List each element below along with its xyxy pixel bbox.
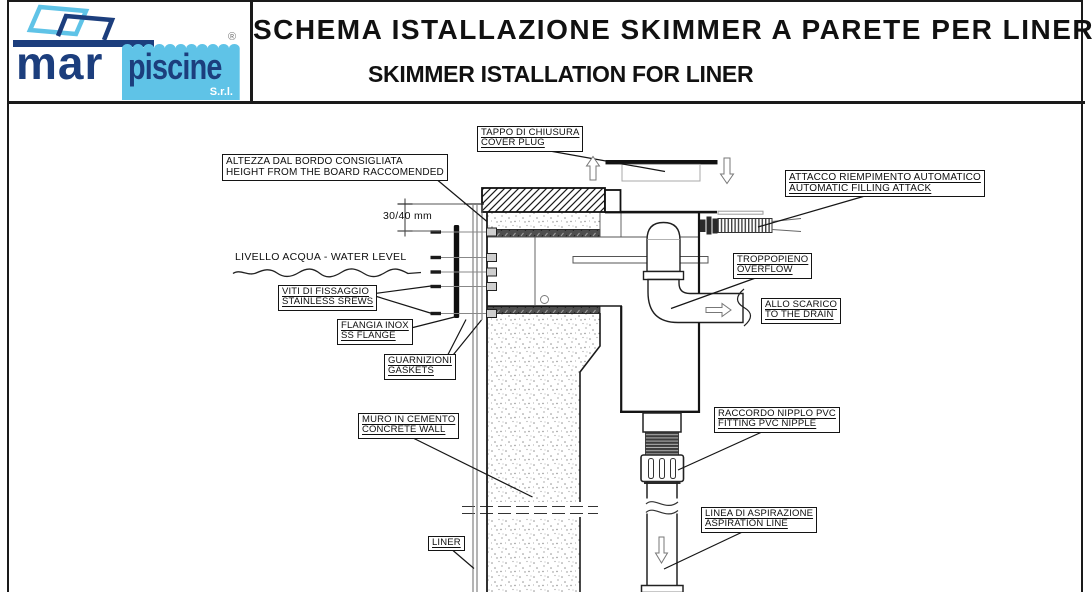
- callout-pvc-nipple: RACCORDO NIPPLO PVC FITTING PVC NIPPLE: [714, 407, 840, 433]
- callout-liner: LINER: [428, 536, 465, 551]
- callout-aspiration-line: LINEA DI ASPIRAZIONE ASPIRATION LINE: [701, 507, 817, 533]
- callout-ss-flange: FLANGIA INOX SS FLANGE: [337, 319, 413, 345]
- page: mar piscine S.r.l. ®: [0, 0, 1092, 592]
- nipple-fitting: [641, 413, 684, 482]
- callout-fixing-screws: VITI DI FISSAGGIO STAINLESS SREWS: [278, 285, 377, 311]
- logo-word-piscine: piscine: [128, 46, 222, 87]
- callout-automatic-filling: ATTACCO RIEMPIMENTO AUTOMATICO AUTOMATIC…: [785, 170, 985, 197]
- callout-to-drain: ALLO SCARICO TO THE DRAIN: [761, 298, 841, 324]
- logo-suffix: S.r.l.: [210, 86, 233, 98]
- weir-plate: [573, 257, 708, 264]
- logo-word-mar: mar: [16, 37, 103, 89]
- pool-coping: [482, 188, 621, 212]
- water-level-line: [233, 269, 421, 277]
- dimension-label: 30/40 mm: [383, 210, 432, 222]
- callout-overflow: TROPPOPIENO OVERFLOW: [733, 253, 812, 279]
- ss-flange-plate: [454, 225, 459, 318]
- water-level-label: LIVELLO ACQUA - WATER LEVEL: [235, 251, 407, 263]
- callout-height-from-board: ALTEZZA DAL BORDO CONSIGLIATA HEIGHT FRO…: [222, 154, 448, 181]
- registered-mark-icon: ®: [228, 31, 236, 43]
- callout-concrete-wall: MURO IN CEMENTO CONCRETE WALL: [358, 413, 459, 439]
- flange-assembly: [398, 204, 497, 592]
- skimmer-section-drawing: mar piscine S.r.l. ®: [0, 0, 1092, 592]
- callout-cover-plug: TAPPO DI CHIUSURA COVER PLUG: [477, 126, 583, 152]
- arrow-down-icon: [721, 158, 734, 184]
- arrow-down-pipe-icon: [656, 537, 668, 563]
- callout-gaskets: GUARNIZIONI GASKETS: [384, 354, 456, 380]
